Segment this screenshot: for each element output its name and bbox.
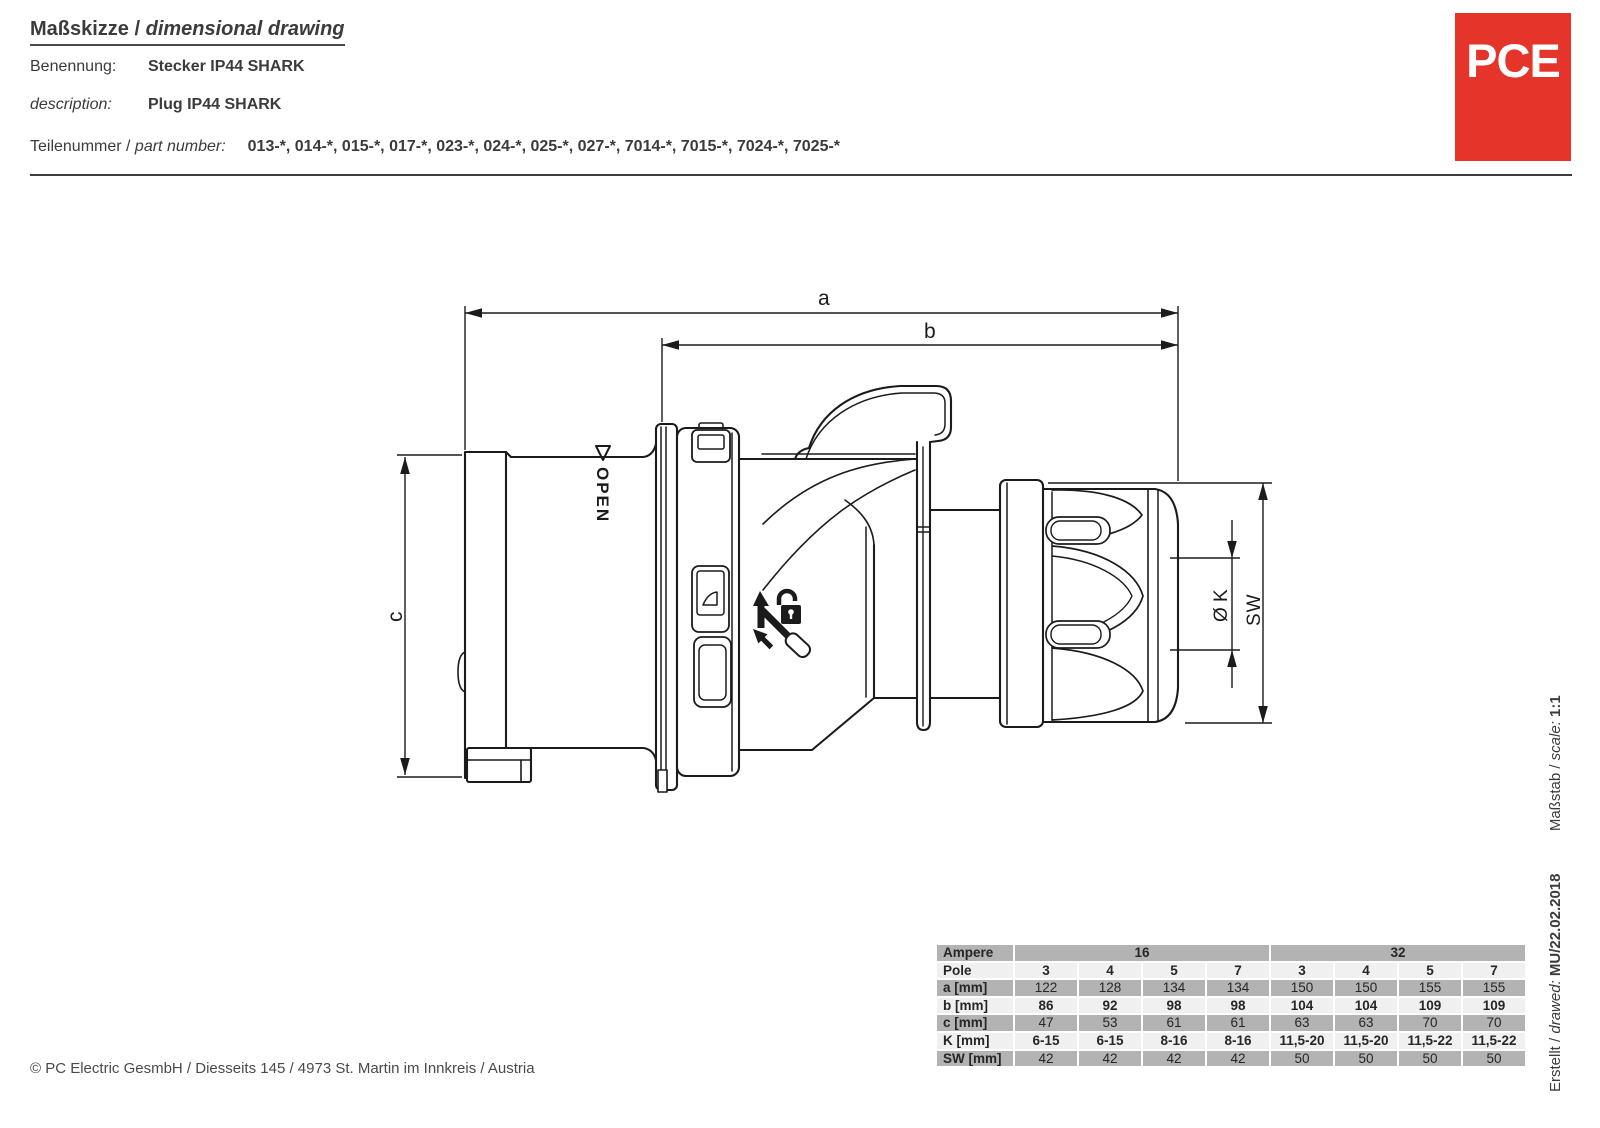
created-label: Erstellt /: [1547, 1034, 1564, 1092]
table-cell: 50: [1271, 1051, 1333, 1067]
table-row-label: c [mm]: [937, 1015, 1013, 1031]
shark-fin-gland: [1043, 489, 1178, 722]
datasheet-page: Maßskizze / dimensional drawing Benennun…: [0, 0, 1600, 1128]
table-cell: 6-15: [1015, 1033, 1077, 1049]
table-cell: 61: [1207, 1015, 1269, 1031]
table-cell: 109: [1399, 998, 1461, 1014]
dimension-lines: [397, 306, 1272, 777]
table-cell: 42: [1207, 1051, 1269, 1067]
table-cell: 42: [1143, 1051, 1205, 1067]
created-value: MU/22.02.2018: [1547, 874, 1564, 977]
table-cell: 98: [1207, 998, 1269, 1014]
table-cell: 70: [1463, 1015, 1525, 1031]
table-cell: 50: [1463, 1051, 1525, 1067]
table-cell: 70: [1399, 1015, 1461, 1031]
table-cell: 104: [1335, 998, 1397, 1014]
created-label-en: drawed:: [1547, 980, 1564, 1033]
rear-cap: [465, 452, 506, 778]
table-cell: 50: [1399, 1051, 1461, 1067]
table-row-label: a [mm]: [937, 980, 1013, 996]
table-cell: 11,5-20: [1271, 1033, 1333, 1049]
arrow-up-left-icon: [748, 624, 776, 652]
table-cell: 7: [1207, 963, 1269, 979]
table-cell: 3: [1271, 963, 1333, 979]
sidebar-info: Erstellt / drawed: MU/22.02.2018 Maßstab…: [1547, 695, 1564, 1092]
open-padlock-icon: [779, 591, 801, 624]
table-cell: 150: [1335, 980, 1397, 996]
scale-label: Maßstab /: [1547, 760, 1564, 831]
dimension-arrowheads: [400, 308, 1268, 775]
scale-label-en: scale:: [1547, 721, 1564, 760]
table-cell: 50: [1335, 1051, 1397, 1067]
table-cell: 4: [1335, 963, 1397, 979]
plug-outline: [458, 386, 1178, 792]
table-header-32a: 32: [1271, 945, 1525, 961]
dim-label-c: c: [384, 612, 407, 623]
table-row-label: b [mm]: [937, 998, 1013, 1014]
dim-label-k: Ø K: [1211, 589, 1232, 622]
table-cell: 5: [1399, 963, 1461, 979]
table-cell: 3: [1015, 963, 1077, 979]
dim-label-b: b: [924, 320, 936, 343]
table-header-16a: 16: [1015, 945, 1269, 961]
table-row-label: K [mm]: [937, 1033, 1013, 1049]
table-cell: 86: [1015, 998, 1077, 1014]
open-label: OPEN: [593, 467, 612, 523]
table-cell: 61: [1143, 1015, 1205, 1031]
table-cell: 155: [1399, 980, 1461, 996]
table-cell: 134: [1143, 980, 1205, 996]
table-cell: 11,5-22: [1463, 1033, 1525, 1049]
arrow-up-icon: [753, 591, 769, 628]
dim-label-a: a: [818, 287, 830, 310]
table-cell: 5: [1143, 963, 1205, 979]
table-cell: 63: [1335, 1015, 1397, 1031]
table-cell: 134: [1207, 980, 1269, 996]
table-row-label: Pole: [937, 963, 1013, 979]
table-cell: 98: [1143, 998, 1205, 1014]
table-cell: 155: [1463, 980, 1525, 996]
table-cell: 8-16: [1143, 1033, 1205, 1049]
unlock-icons: [748, 591, 812, 660]
table-cell: 47: [1015, 1015, 1077, 1031]
table-cell: 4: [1079, 963, 1141, 979]
scale-value: 1:1: [1547, 695, 1564, 717]
table-cell: 128: [1079, 980, 1141, 996]
copyright-footer: © PC Electric GesmbH / Diesseits 145 / 4…: [30, 1060, 535, 1077]
table-header-ampere: Ampere: [937, 945, 1013, 961]
spec-table: Ampere 16 32 Pole34573457a [mm]122128134…: [937, 945, 1525, 1066]
table-cell: 122: [1015, 980, 1077, 996]
table-cell: 104: [1271, 998, 1333, 1014]
table-cell: 63: [1271, 1015, 1333, 1031]
dim-label-sw: SW: [1244, 593, 1265, 626]
table-cell: 11,5-20: [1335, 1033, 1397, 1049]
table-cell: 92: [1079, 998, 1141, 1014]
table-cell: 109: [1463, 998, 1525, 1014]
table-cell: 7: [1463, 963, 1525, 979]
table-cell: 53: [1079, 1015, 1141, 1031]
table-cell: 11,5-22: [1399, 1033, 1461, 1049]
table-row-label: SW [mm]: [937, 1051, 1013, 1067]
table-cell: 42: [1015, 1051, 1077, 1067]
table-cell: 150: [1271, 980, 1333, 996]
table-cell: 42: [1079, 1051, 1141, 1067]
table-cell: 8-16: [1207, 1033, 1269, 1049]
table-cell: 6-15: [1079, 1033, 1141, 1049]
